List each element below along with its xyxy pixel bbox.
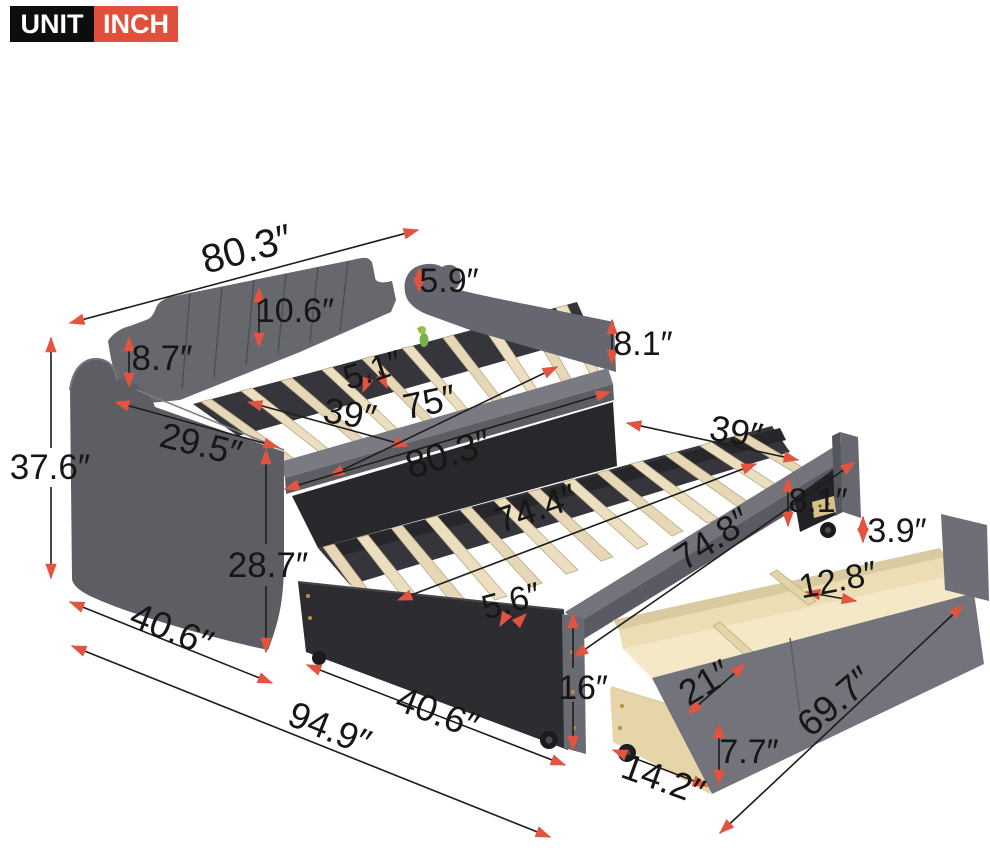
product-dimension-diagram: 80.3″ 5.9″ 10.6″ 8.7″ 8.1″ 5.1″ 39″ — [0, 0, 990, 866]
caster-wheel — [312, 651, 326, 665]
drawer-far-end-upholstered — [941, 514, 989, 601]
screw — [306, 594, 310, 598]
dim-arm-top-height: 5.9″ — [419, 262, 479, 300]
dim-label-drawer-front-height: 7.7″ — [719, 733, 778, 771]
unit-badge: UNIT INCH — [10, 6, 178, 42]
dim-label-overall-height: 37.6″ — [10, 448, 91, 487]
dim-label-daybed-width: 39″ — [321, 389, 380, 438]
unit-badge-value: INCH — [103, 9, 169, 39]
caster-hub — [825, 527, 831, 533]
dim-label-back-left-height: 8.7″ — [131, 339, 192, 378]
screw — [618, 726, 622, 730]
dim-label-backrest-height: 10.6″ — [256, 292, 334, 330]
dim-daybed-foot-height: 8.1″ — [612, 320, 673, 364]
caster-hub — [546, 737, 553, 744]
dim-drawer-depth: 3.9″ — [863, 512, 927, 550]
screw — [308, 616, 312, 620]
parrot-body — [420, 333, 429, 347]
dim-label-daybed-foot-height: 8.1″ — [613, 325, 672, 363]
unit-badge-label: UNIT — [21, 9, 84, 39]
dim-label-drawer-depth: 3.9″ — [867, 512, 926, 550]
screw — [620, 704, 624, 708]
dim-label-arm-top-height: 5.9″ — [419, 262, 478, 300]
diagram-canvas: 80.3″ 5.9″ 10.6″ 8.7″ 8.1″ 5.1″ 39″ — [0, 0, 990, 866]
dim-label-trundle-height: 16″ — [558, 669, 608, 707]
dim-label-arm-front-height: 28.7″ — [228, 546, 309, 585]
